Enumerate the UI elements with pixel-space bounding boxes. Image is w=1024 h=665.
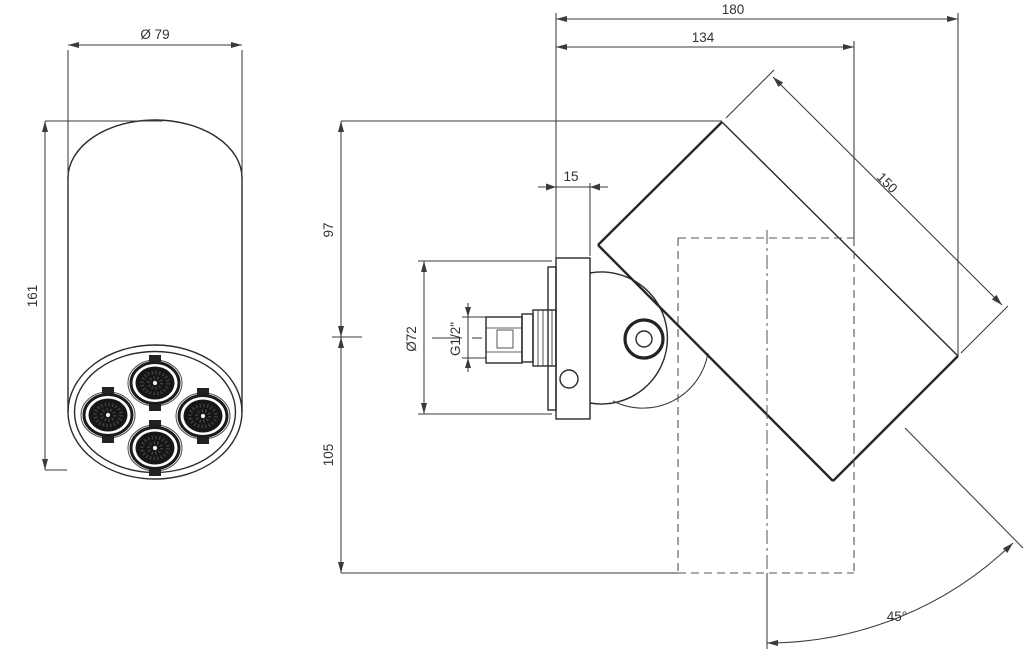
dim-overall-depth-180: 180 <box>556 2 958 22</box>
wall-connector <box>486 310 556 366</box>
dim-label-g12: G1/2" <box>448 322 463 356</box>
connector-barrel <box>533 310 556 366</box>
dim-label-45: 45° <box>887 609 907 624</box>
head-back-end <box>598 122 722 245</box>
drawing-svg: Ø 79 161 180 <box>0 0 1024 665</box>
dim-label-height-161: 161 <box>25 285 40 308</box>
nozzle-left <box>81 387 135 443</box>
wall-plate <box>548 258 590 419</box>
dim-label-diameter-79: Ø 79 <box>140 27 169 42</box>
dim-label-97: 97 <box>321 222 336 237</box>
connector-ring <box>522 314 533 362</box>
dim-swivel-angle-45: 45° <box>767 428 1023 649</box>
side-view: 180 134 15 97 105 <box>321 2 1023 649</box>
head-45-position <box>598 122 958 481</box>
dim-label-134: 134 <box>692 30 715 45</box>
ball-joint <box>590 272 708 408</box>
axis-45-extension <box>905 428 1023 548</box>
dim-plate-thickness-15: 15 <box>538 169 608 191</box>
nozzle-bottom <box>128 420 182 476</box>
dim-label-15: 15 <box>563 169 578 184</box>
dim-label-72: Ø72 <box>404 326 419 352</box>
dim-head-length-150: 150 <box>726 70 1008 353</box>
joint-swivel-arc <box>613 353 708 408</box>
technical-drawing: Ø 79 161 180 <box>0 0 1024 665</box>
dim-below-axis-105: 105 <box>321 337 344 573</box>
nozzle-top <box>128 355 182 411</box>
dim-above-axis-97: 97 <box>321 121 344 337</box>
connector-nut <box>486 317 522 363</box>
head-down-position-hidden <box>678 230 854 573</box>
plate-screw-hole <box>560 370 578 388</box>
dim-label-105: 105 <box>321 444 336 467</box>
dim-label-150: 150 <box>874 170 901 197</box>
angle-arc <box>767 543 1013 643</box>
pivot-outer <box>625 320 663 358</box>
head-upper-side <box>722 122 958 356</box>
dim-label-180: 180 <box>722 2 745 17</box>
nozzle-right <box>176 388 230 444</box>
head-dome-outline <box>68 120 242 178</box>
dim-head-depth-134: 134 <box>556 30 854 50</box>
connector-recess <box>497 330 513 348</box>
head-lower-side <box>598 245 833 481</box>
front-view: Ø 79 161 <box>25 27 242 479</box>
dim-diameter-79: Ø 79 <box>68 27 242 172</box>
plate-body <box>556 258 590 419</box>
